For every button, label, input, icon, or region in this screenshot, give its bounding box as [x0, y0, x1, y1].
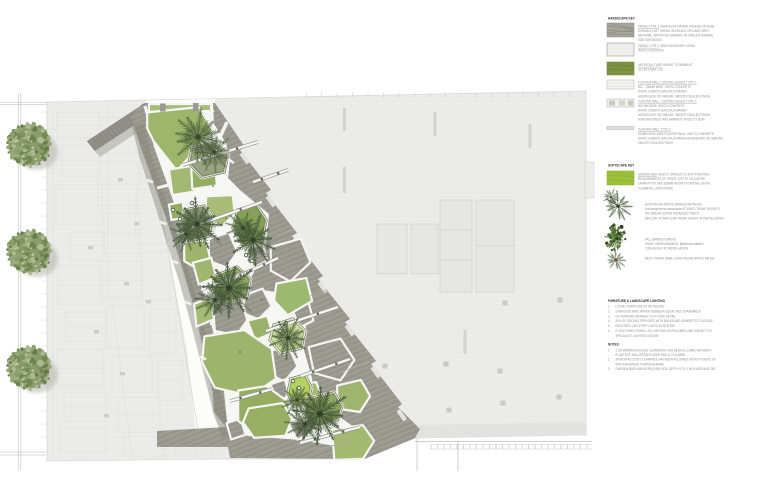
svg-text:PAVING TYPE 1: MAIN BODY PAVIN: PAVING TYPE 1: MAIN BODY PAVING. PAVERS … — [638, 24, 714, 42]
svg-text:PLANTER WALL / SEATING EDGES T: PLANTER WALL / SEATING EDGES TYPE 1:600 … — [638, 80, 710, 98]
svg-text:NOTES: NOTES — [608, 342, 619, 346]
svg-text:SOFTSCAPE KEY: SOFTSCAPE KEY — [608, 163, 635, 167]
svg-text:TALL BAMBOO GROVEGIANT GREEN B: TALL BAMBOO GROVEGIANT GREEN BAMBOO, Bam… — [645, 237, 704, 251]
svg-text:MULTI-TRUNK SMALL AUSTRALIAN N: MULTI-TRUNK SMALL AUSTRALIAN NATIVE PALM… — [645, 256, 715, 260]
svg-text:6.: 6. — [608, 329, 610, 333]
svg-text:3.: 3. — [608, 367, 610, 371]
svg-text:GARDEN BED GENTLY GRADED TO SU: GARDEN BED GENTLY GRADED TO SUIT PLANTIN… — [638, 172, 710, 190]
svg-text:2.: 2. — [608, 357, 610, 361]
svg-text:AUSTRALIAN NATIVE BANGALOW PAL: AUSTRALIAN NATIVE BANGALOW PALMSArchonto… — [645, 202, 724, 220]
svg-text:4.: 4. — [608, 319, 610, 323]
svg-text:FURNITURE & LANDSCAPE LIGHTING: FURNITURE & LANDSCAPE LIGHTING — [608, 298, 665, 302]
svg-text:GARDEN BEDS AREAS REQUIRE SOIL: GARDEN BEDS AREAS REQUIRE SOIL DEPTH 0.7… — [616, 367, 717, 371]
svg-text:5.: 5. — [608, 324, 610, 328]
svg-text:3.: 3. — [608, 314, 610, 318]
svg-text:FLOOR DIRECTIONAL LED LIGHTING: FLOOR DIRECTIONAL LED LIGHTING AS REQUIR… — [616, 329, 713, 333]
svg-text:1.: 1. — [608, 304, 610, 308]
svg-text:STAINLESS BINS, WATER BUBBLER: STAINLESS BINS, WATER BUBBLER EQUAL MCC … — [616, 309, 702, 313]
svg-text:HARDSCAPE KEY: HARDSCAPE KEY — [608, 16, 636, 20]
svg-text:ARTIFICIAL TURF MOUND TO 300MM: ARTIFICIAL TURF MOUND TO 300MM ATSLOPES … — [638, 62, 693, 71]
svg-text:2.: 2. — [608, 309, 610, 313]
svg-text:PLANTER WALL TYPE 3:200MM WIDE: PLANTER WALL TYPE 3:200MM WIDE NOM PLANT… — [638, 127, 723, 145]
svg-text:PLANTER WALL / SEATING EDGES T: PLANTER WALL / SEATING EDGES TYPE 2:500 … — [638, 99, 711, 122]
svg-text:1.: 1. — [608, 348, 610, 352]
svg-text:LOOSE FURNITURE BY RETAILERS: LOOSE FURNITURE BY RETAILERS — [616, 304, 665, 308]
svg-text:SPECIALIST LIGHTING DESIGN: SPECIALIST LIGHTING DESIGN — [616, 334, 659, 338]
svg-text:NO SMOKING SIGNAGE TO FUTURE D: NO SMOKING SIGNAGE TO FUTURE DETAIL — [616, 314, 676, 318]
svg-text:PAVING TYPE 2: AREA BOUNDARY.: PAVING TYPE 2: AREA BOUNDARY. VEINS.INSI… — [638, 43, 696, 52]
svg-text:RECESSED LED STRIP LIGHTS IN S: RECESSED LED STRIP LIGHTS IN SEATING — [616, 324, 676, 328]
svg-text:20% OF SEATING PROVIDED WITH B: 20% OF SEATING PROVIDED WITH BACKS AND A… — [616, 319, 713, 323]
